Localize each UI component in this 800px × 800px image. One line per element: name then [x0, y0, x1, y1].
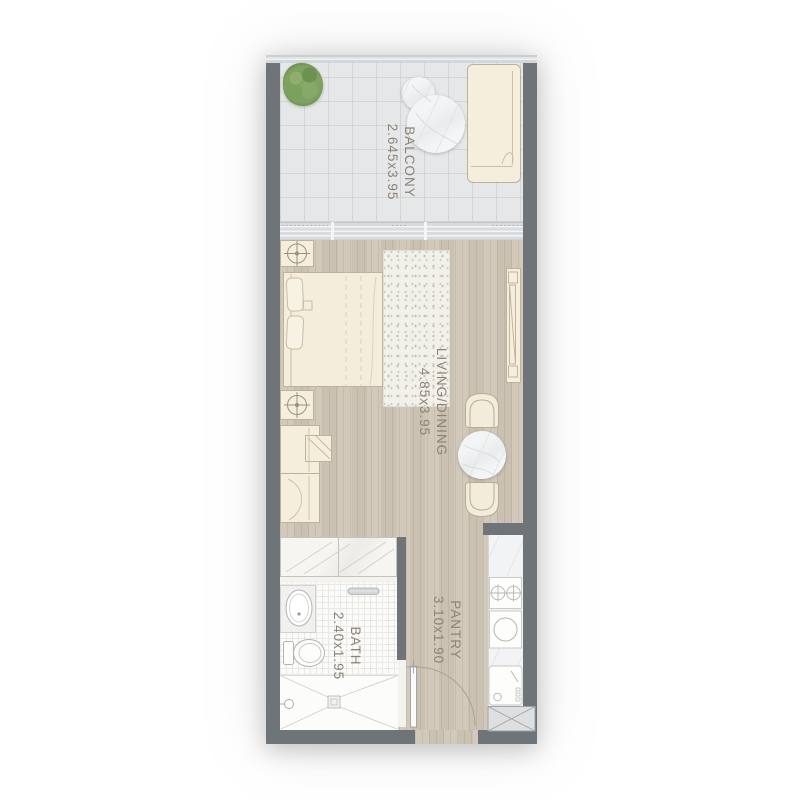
armchair-icon	[280, 473, 320, 523]
shower-tray	[280, 675, 398, 731]
bath-dims: 2.40x1.95	[330, 612, 347, 680]
bath-doorway	[398, 660, 406, 727]
bath-label: BATH 2.40x1.95	[330, 612, 364, 680]
pantry-label: PANTRY 3.10x1.90	[430, 596, 464, 664]
apartment-floor-plan: BALCONY 2.645x3.95 LIVING/DINING 4.85x3.…	[266, 55, 537, 744]
living-dining-label: LIVING/DINING 4.85x3.95	[416, 348, 450, 456]
wall-pantry-north	[483, 523, 523, 535]
balcony-name: BALCONY	[401, 124, 418, 201]
floor-plan-page: BALCONY 2.645x3.95 LIVING/DINING 4.85x3.…	[0, 0, 800, 800]
pantry-dims: 3.10x1.90	[430, 596, 447, 664]
wall-bottom-left	[266, 730, 415, 744]
wall-right	[523, 63, 537, 744]
window-mullion	[424, 222, 427, 240]
balcony-label: BALCONY 2.645x3.95	[384, 124, 418, 201]
washbasin-counter	[280, 585, 316, 633]
pantry-name: PANTRY	[447, 596, 464, 664]
lounger-icon	[467, 64, 521, 183]
nightstand	[280, 240, 314, 267]
nightstand	[280, 390, 314, 420]
window-mullion	[331, 222, 334, 240]
entrance-threshold	[415, 730, 478, 744]
bed-icon	[283, 272, 383, 387]
wall-bottom-right	[478, 730, 537, 744]
living-dining-name: LIVING/DINING	[433, 348, 450, 456]
balcony-sliding-window	[280, 222, 523, 240]
wall-bath-east	[397, 537, 406, 660]
living-dining-dims: 4.85x3.95	[416, 348, 433, 456]
side-table-icon	[305, 435, 332, 462]
wall-left	[266, 63, 280, 744]
balcony-railing	[266, 55, 537, 63]
pantry-counter	[488, 535, 523, 707]
bath-name: BATH	[347, 612, 364, 680]
plant-icon	[283, 63, 323, 106]
wardrobe	[280, 537, 397, 577]
tv-console-icon	[506, 268, 521, 383]
balcony-dims: 2.645x3.95	[384, 124, 401, 201]
dining-table-icon	[458, 431, 506, 479]
